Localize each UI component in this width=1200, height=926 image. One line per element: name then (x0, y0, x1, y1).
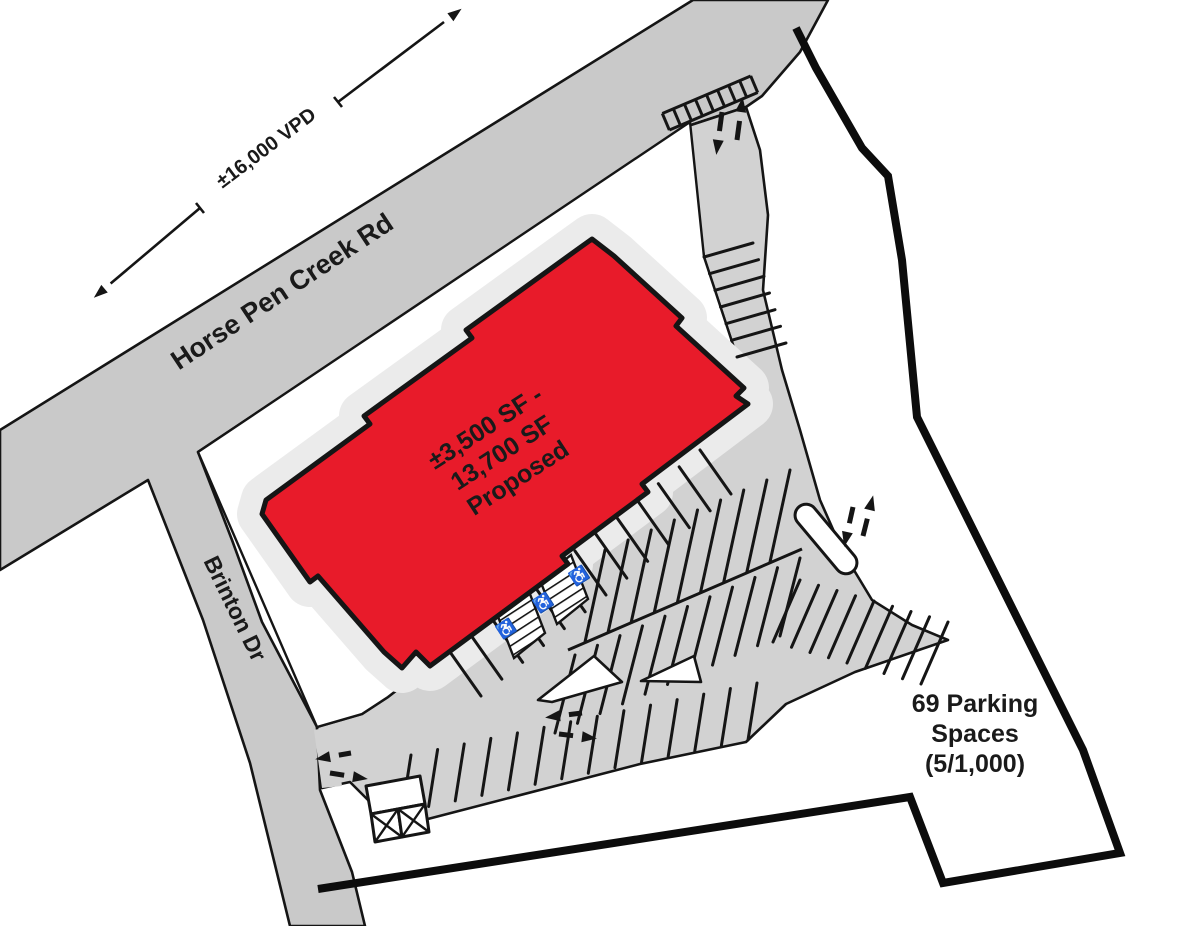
traffic-count-label: ±16,000 VPD (212, 104, 320, 193)
parking-count-label: 69 Parking Spaces (5/1,000) (912, 690, 1038, 778)
parking-count-line1: 69 Parking (912, 690, 1038, 718)
parking-count-line3: (5/1,000) (925, 750, 1025, 778)
site-plan-map: ♿ ♿ ♿ ±3,500 SF - 13,700 SF Proposed Hor… (0, 0, 1200, 926)
dumpster-enclosure (366, 776, 429, 842)
site-plan-page: ♿ ♿ ♿ ±3,500 SF - 13,700 SF Proposed Hor… (0, 0, 1200, 926)
parking-count-line2: Spaces (931, 720, 1019, 748)
